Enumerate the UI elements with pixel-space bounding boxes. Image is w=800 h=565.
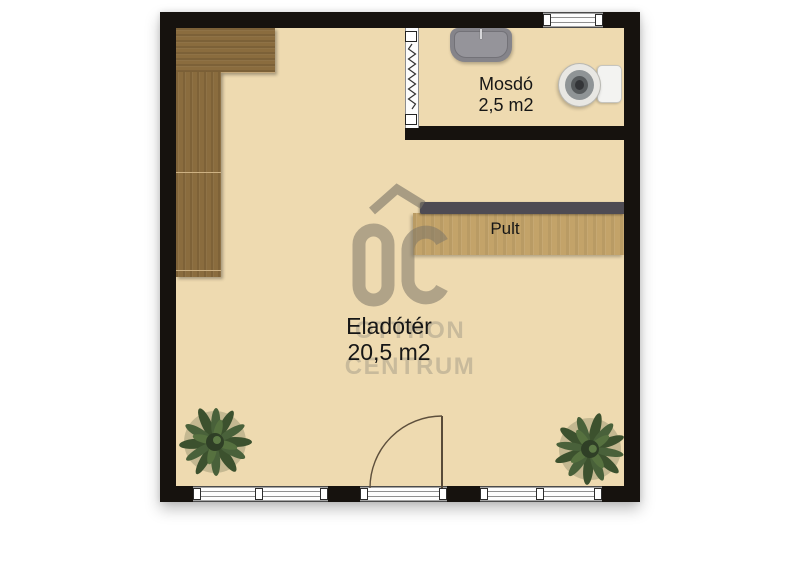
plant-icon — [545, 404, 635, 494]
window-post — [193, 488, 201, 500]
sink-icon — [450, 28, 512, 62]
cabinet-divider — [176, 270, 221, 271]
window-post — [320, 488, 328, 500]
floor-plan-image: OTTHON CENTRUM — [0, 0, 800, 565]
room-label-washroom: Mosdó 2,5 m2 — [446, 74, 566, 116]
window-post — [543, 14, 551, 26]
door-jamb-top — [405, 31, 417, 42]
window-post — [360, 488, 368, 500]
wall-washroom — [405, 126, 638, 140]
floor-plan: OTTHON CENTRUM — [160, 12, 640, 502]
window-post — [439, 488, 447, 500]
room-name: Mosdó — [446, 74, 566, 95]
room-area: 2,5 m2 — [446, 95, 566, 116]
counter-top — [420, 202, 624, 214]
room-area: 20,5 m2 — [309, 339, 469, 365]
plant-icon — [170, 397, 260, 487]
window-post — [595, 14, 603, 26]
cabinet-divider — [176, 172, 221, 173]
room-name: Eladótér — [309, 313, 469, 339]
toilet-hole — [575, 80, 584, 90]
window-post — [480, 488, 488, 500]
folding-door — [405, 28, 419, 128]
window-bottom-door-bay — [360, 486, 447, 502]
room-label-salesarea: Eladótér 20,5 m2 — [309, 313, 469, 365]
counter-label: Pult — [460, 219, 550, 238]
counter-text: Pult — [460, 219, 550, 238]
cabinet-top-run — [176, 28, 275, 73]
faucet-icon — [480, 29, 482, 39]
window-top — [543, 12, 603, 28]
window-mullion — [536, 488, 544, 500]
door-jamb-bottom — [405, 114, 417, 125]
folding-door-zigzag — [406, 42, 418, 112]
cabinet-side-run — [176, 72, 221, 277]
window-mullion — [255, 488, 263, 500]
